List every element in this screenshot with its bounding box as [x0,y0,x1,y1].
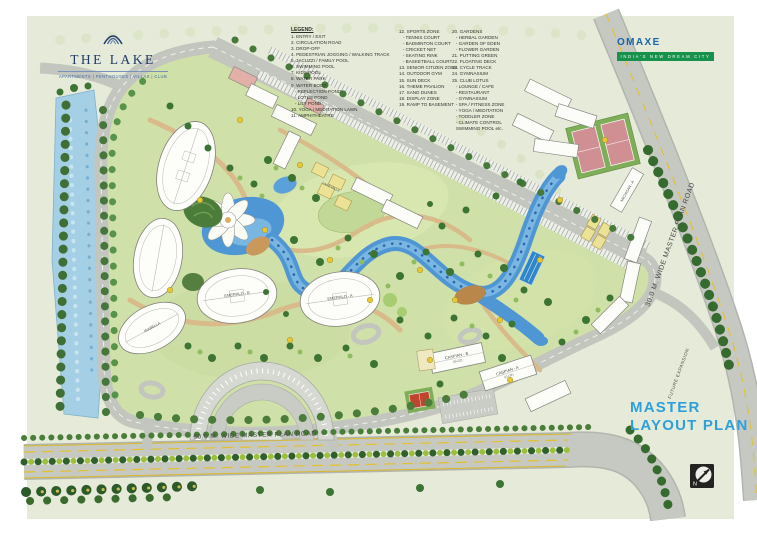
north-label: N [693,482,697,488]
legend-column-2: 12. SPORTS ZONE - TENNIS COURT - BADMINT… [399,29,451,108]
project-name: THE LAKE [50,52,176,68]
putting-green [397,307,407,317]
pond [534,336,548,346]
lake-logo-icon [98,26,128,46]
developer-name: OMAXE [617,37,717,48]
developer-tagline: INDIA'S NEW DREAM CITY [617,52,714,61]
legend-column-3: 20. GARDENS - HERBAL GARDEN - GARDEN OF … [452,29,512,132]
plan-title: MASTER LAYOUT PLAN [630,399,749,434]
north-arrow: N [690,464,714,488]
project-tagline: APARTMENTS | PENTHOUSES | VILLAS | CLUB [50,74,176,79]
putting-green [383,293,397,307]
tree-row [103,110,106,415]
master-plan-page: 30.0 M. WIDE MASTER PLAN ROAD 60.0 M. WI… [0,0,757,535]
legend-column-1: 1. ENTRY / EXIT 2. CIRCULATION ROAD 3. D… [291,34,399,119]
project-logo: THE LAKE APARTMENTS | PENTHOUSES | VILLA… [50,26,176,79]
legend-heading: LEGEND: [291,27,314,34]
developer-logo: OMAXE INDIA'S NEW DREAM CITY [617,37,717,61]
logo-divider [58,71,168,72]
